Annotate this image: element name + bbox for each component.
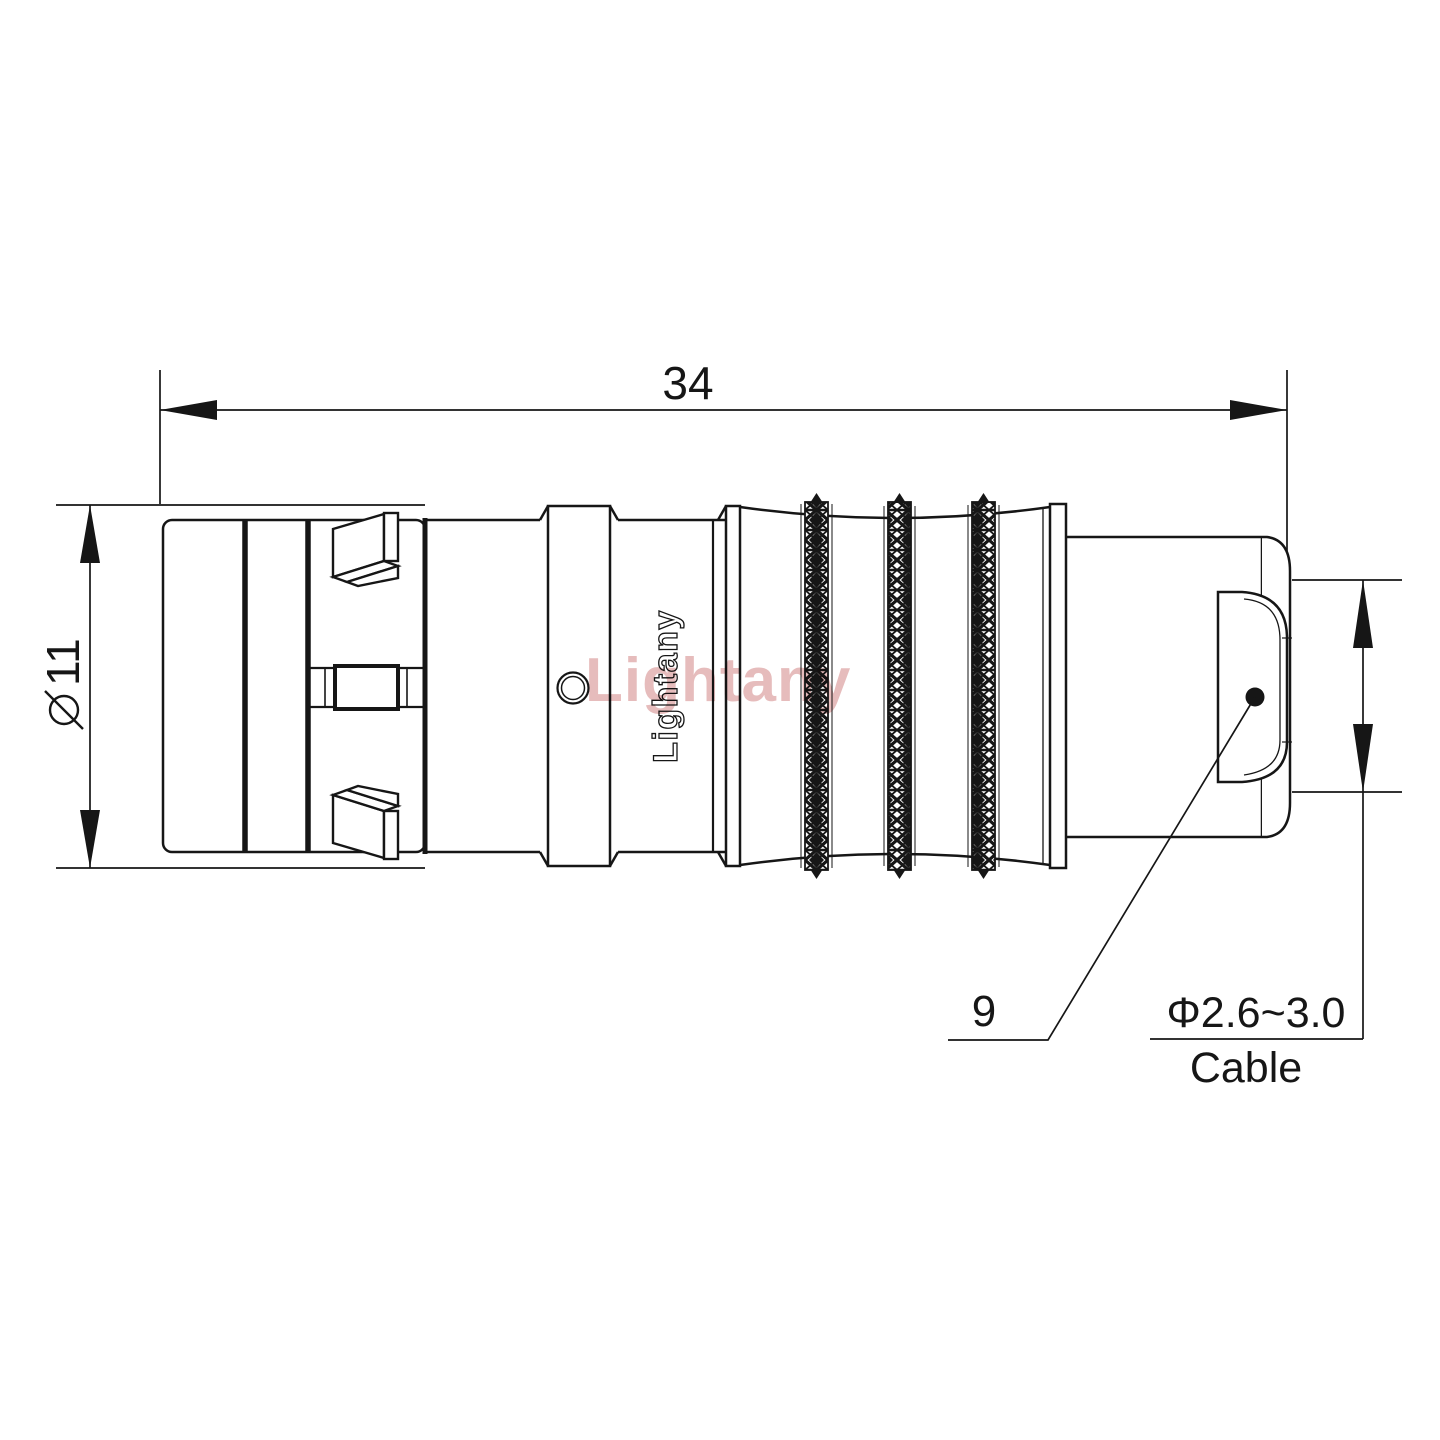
diameter-dim-label: 11 xyxy=(37,638,89,686)
boot-dim-label: 9 xyxy=(972,987,996,1036)
step-ring xyxy=(718,506,740,866)
guide-pin xyxy=(308,666,425,709)
cable-boot xyxy=(1218,592,1292,782)
latch-bottom xyxy=(333,786,398,859)
arrowhead-right xyxy=(1230,400,1287,420)
arrowhead-down xyxy=(1353,724,1373,792)
length-dim-label: 34 xyxy=(662,357,713,409)
diameter-label-group: 11 xyxy=(37,638,89,729)
latch-top xyxy=(333,513,398,586)
arrowhead-down xyxy=(80,810,100,868)
arrowhead-up xyxy=(80,505,100,563)
brand-engraving-text: Lightany xyxy=(647,609,685,763)
technical-drawing: 34 11 xyxy=(0,0,1440,1440)
cable-word-label: Cable xyxy=(1190,1044,1302,1092)
knurl-strip xyxy=(888,502,911,870)
cable-spec-label: Φ2.6~3.0 xyxy=(1167,989,1346,1037)
knurl-strip xyxy=(805,502,828,870)
knurl-strip xyxy=(972,502,995,870)
drawing-canvas: 34 11 xyxy=(0,0,1440,1440)
raised-band xyxy=(540,506,618,866)
connector-body xyxy=(163,493,1292,879)
arrowhead-left xyxy=(160,400,217,420)
arrowhead-up xyxy=(1353,580,1373,648)
knurl-strips xyxy=(801,493,999,879)
knurl-collar xyxy=(1050,504,1066,868)
brand-engraving: Lightany xyxy=(647,609,685,763)
dim-overall-length: 34 xyxy=(160,357,1287,552)
